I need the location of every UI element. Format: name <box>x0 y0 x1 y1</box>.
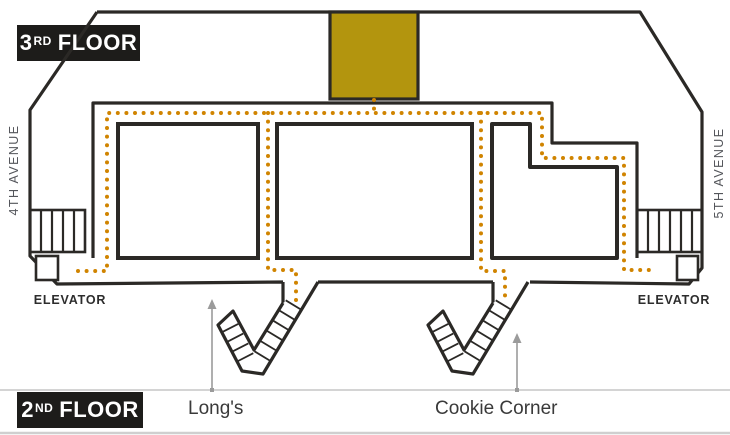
floor-word: FLOOR <box>59 397 139 423</box>
second-floor-badge: 2NDFLOOR <box>17 392 143 428</box>
elevator-right-box <box>677 256 698 280</box>
street-label-5th-avenue: 5TH AVENUE <box>712 125 726 221</box>
store-label-longs: Long's <box>188 398 243 420</box>
store-label-cookie-corner: Cookie Corner <box>435 398 558 420</box>
floor-number: 3 <box>20 30 33 56</box>
room-center <box>277 124 472 258</box>
floor-map: 3RDFLOOR 2NDFLOOR 4TH AVENUE 5TH AVENUE … <box>0 0 730 435</box>
room-left <box>118 124 258 258</box>
floor-word: FLOOR <box>58 30 138 56</box>
third-floor-badge: 3RDFLOOR <box>17 25 140 61</box>
stairs-left <box>30 210 85 252</box>
floor-ordinal: ND <box>35 401 53 415</box>
floor-plan-drawing <box>0 0 730 435</box>
v-stairs-right <box>428 282 528 374</box>
stairs-right <box>637 210 702 252</box>
floor-ordinal: RD <box>33 34 51 48</box>
highlighted-room <box>330 12 418 99</box>
cookie-corner-pointer-arrow <box>513 333 522 392</box>
elevator-left-box <box>36 256 58 280</box>
street-label-4th-avenue: 4TH AVENUE <box>7 122 21 218</box>
floor-number: 2 <box>21 397 34 423</box>
elevator-label-right: ELEVATOR <box>629 293 719 307</box>
elevator-label-left: ELEVATOR <box>25 293 115 307</box>
longs-pointer-arrow <box>208 299 217 392</box>
v-stairs-left <box>218 282 318 374</box>
